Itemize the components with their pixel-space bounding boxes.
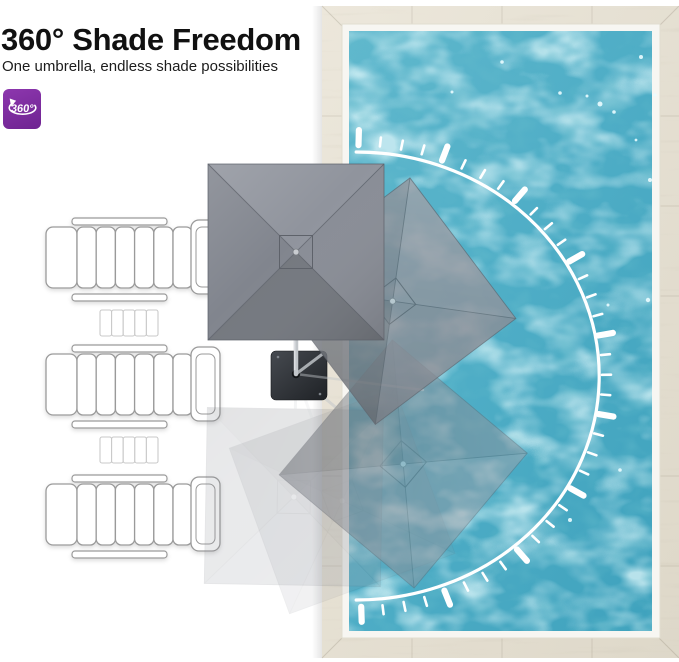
water-sparkle [568,518,572,522]
water-sparkle [639,55,643,59]
chair-bottom-rail [72,421,167,428]
chair-slat [96,354,115,415]
scene-stage: 360° Shade Freedom One umbrella, endless… [0,0,679,662]
water-sparkle [635,139,638,142]
umbrella-canopy [208,164,384,340]
water-sparkle [451,91,454,94]
table-slat [100,437,112,463]
water-sparkle [618,468,622,472]
chair-top-rail [72,218,167,225]
table-slat [123,310,135,336]
chair-slat [173,354,192,415]
chair-top-rail [72,475,167,482]
arc-tick-minor [401,141,403,150]
lounge-furniture [46,218,220,558]
chair-slat [115,484,134,545]
chair-slat [154,227,173,288]
arc-tick-minor [404,602,406,611]
table-slat [112,437,124,463]
rotation-badge-label: 360° [10,103,34,115]
chair-slat [115,354,134,415]
side-table [100,437,158,463]
base-screw [277,356,280,359]
chair-headrest-pad [196,354,215,414]
arc-tick-minor [383,605,384,614]
scene-illustration [0,0,679,662]
chair-slat [154,354,173,415]
base-screw [319,393,322,396]
water-sparkle [607,304,610,307]
chair-slat [96,484,115,545]
lounge-chair [46,218,220,301]
arc-tick-minor [601,395,610,396]
chair-slat [77,227,96,288]
chair-top-rail [72,345,167,352]
side-table [100,310,158,336]
arc-tick-major [599,414,614,417]
chair-slat [77,484,96,545]
chair-slat [135,484,154,545]
table-slat [123,437,135,463]
chair-bottom-rail [72,294,167,301]
chair-bottom-rail [72,551,167,558]
table-slat [146,310,158,336]
chair-slat [115,227,134,288]
page-title: 360° Shade Freedom [1,22,301,58]
chair-slat [173,484,192,545]
table-slat [135,437,147,463]
chair-slat [154,484,173,545]
rotation-badge: 360° [3,89,41,129]
water-sparkle [648,178,652,182]
canopy-hub [293,249,299,255]
water-sparkle [586,95,589,98]
table-slat [146,437,158,463]
water-sparkle [612,110,616,114]
table-slat [100,310,112,336]
table-slat [112,310,124,336]
chair-back-slat [46,227,77,288]
arc-tick-minor [601,354,610,355]
water-sparkle [558,91,562,95]
arc-tick-major [361,607,362,622]
chair-back-slat [46,484,77,545]
chair-slat [173,227,192,288]
lounge-chair [46,345,220,428]
page-subtitle: One umbrella, endless shade possibilitie… [2,58,278,75]
water-sparkle [646,298,650,302]
arc-tick-minor [380,138,381,147]
water-sparkle [653,93,656,96]
chair-slat [77,354,96,415]
water-sparkle [500,60,504,64]
water-sparkle [598,102,603,107]
chair-back-slat [46,354,77,415]
lounge-chair [46,475,220,558]
chair-slat [135,227,154,288]
table-slat [135,310,147,336]
chair-slat [135,354,154,415]
chair-slat [96,227,115,288]
arc-tick-major [598,333,613,336]
